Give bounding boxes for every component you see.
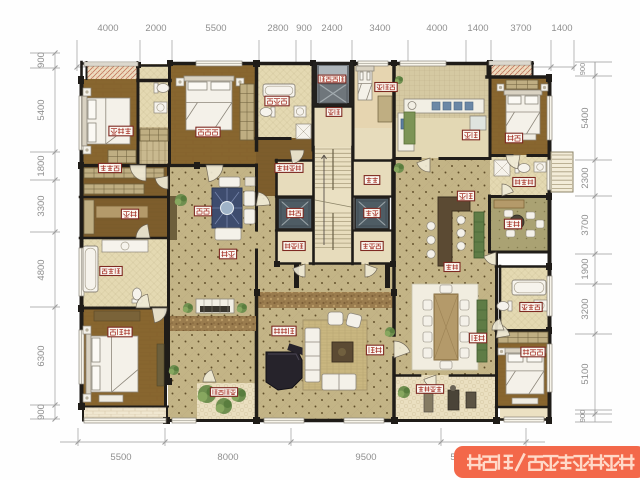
svg-text:3700: 3700	[580, 214, 591, 235]
svg-text:1400: 1400	[467, 23, 488, 34]
svg-text:4800: 4800	[36, 259, 47, 280]
svg-text:6300: 6300	[36, 345, 47, 366]
svg-text:1900: 1900	[580, 258, 591, 279]
svg-text:900: 900	[296, 23, 312, 34]
svg-text:2300: 2300	[580, 167, 591, 188]
svg-text:900: 900	[578, 63, 587, 76]
svg-text:5500: 5500	[110, 452, 131, 463]
svg-text:900: 900	[36, 52, 47, 68]
svg-text:5100: 5100	[580, 363, 591, 384]
svg-text:3200: 3200	[580, 298, 591, 319]
svg-text:900: 900	[36, 404, 47, 420]
svg-text:3400: 3400	[369, 23, 390, 34]
svg-text:1400: 1400	[551, 23, 572, 34]
svg-text:2800: 2800	[267, 23, 288, 34]
svg-text:2400: 2400	[321, 23, 342, 34]
svg-text:4000: 4000	[426, 23, 447, 34]
svg-text:9500: 9500	[355, 452, 376, 463]
svg-text:1800: 1800	[36, 155, 47, 176]
svg-text:5500: 5500	[205, 23, 226, 34]
svg-text:5400: 5400	[580, 107, 591, 128]
svg-text:8000: 8000	[217, 452, 238, 463]
svg-text:5400: 5400	[36, 99, 47, 120]
svg-text:3300: 3300	[36, 195, 47, 216]
svg-text:900: 900	[578, 410, 587, 423]
svg-text:3700: 3700	[510, 23, 531, 34]
svg-text:4000: 4000	[97, 23, 118, 34]
svg-text:2000: 2000	[145, 23, 166, 34]
